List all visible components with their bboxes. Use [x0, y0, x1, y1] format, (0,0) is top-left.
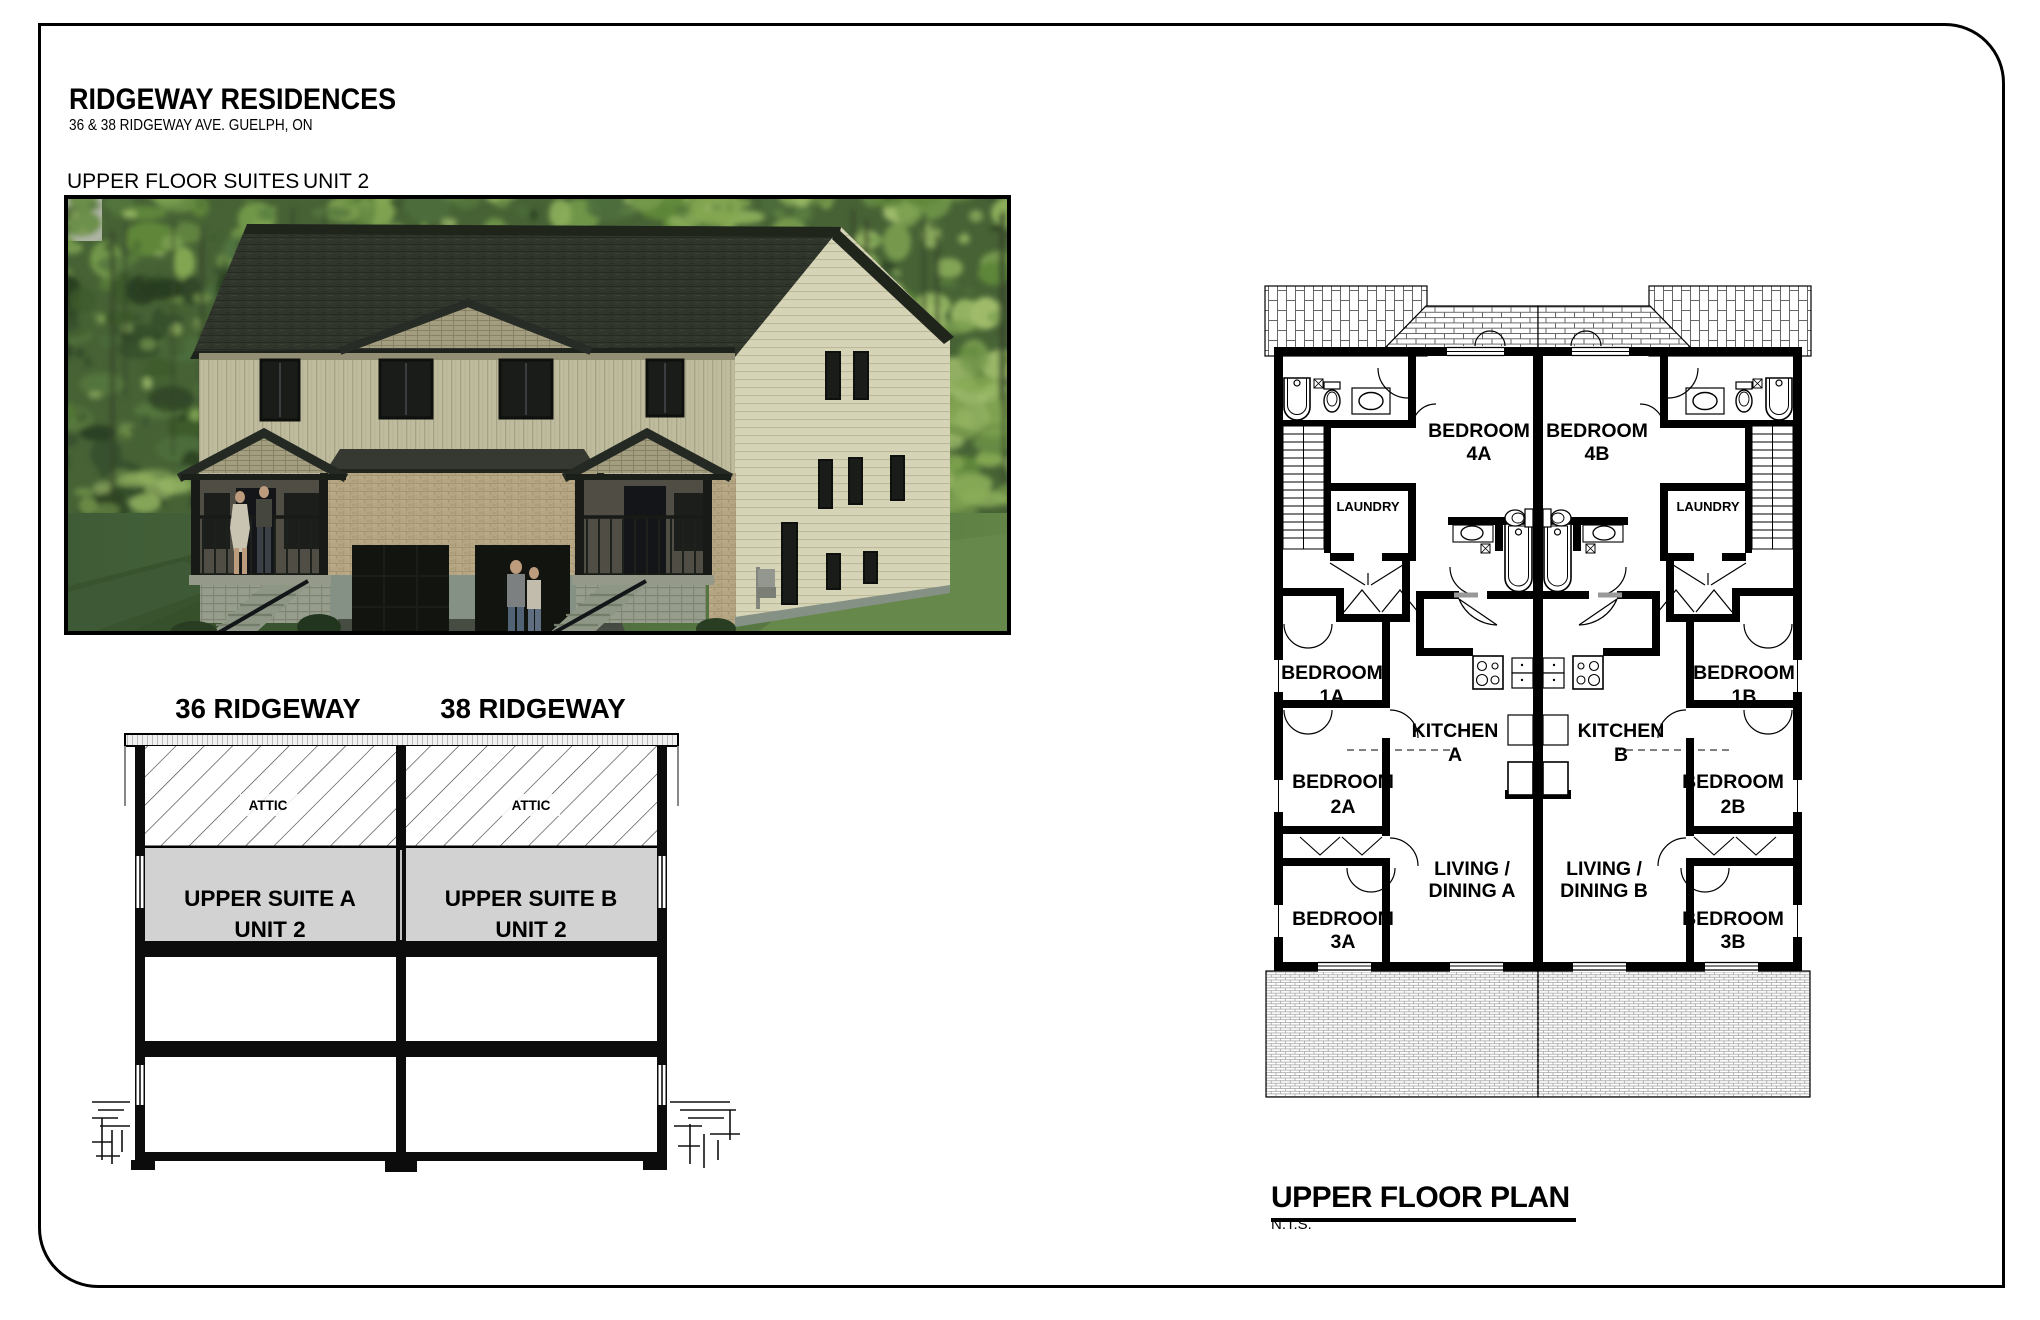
- svg-text:BEDROOM: BEDROOM: [1292, 908, 1394, 930]
- svg-text:1B: 1B: [1732, 686, 1757, 708]
- svg-text:LIVING /: LIVING /: [1434, 858, 1510, 880]
- svg-text:LAUNDRY: LAUNDRY: [1676, 499, 1739, 514]
- svg-text:BEDROOM: BEDROOM: [1682, 771, 1784, 793]
- svg-text:ATTIC: ATTIC: [512, 798, 551, 813]
- svg-text:BEDROOM: BEDROOM: [1292, 771, 1394, 793]
- svg-text:BEDROOM: BEDROOM: [1693, 662, 1795, 684]
- svg-text:4A: 4A: [1467, 443, 1492, 465]
- svg-text:BEDROOM: BEDROOM: [1682, 908, 1784, 930]
- svg-text:LAUNDRY: LAUNDRY: [1336, 499, 1399, 514]
- svg-text:KITCHEN: KITCHEN: [1578, 720, 1665, 742]
- svg-text:ATTIC: ATTIC: [249, 798, 288, 813]
- svg-text:UPPER SUITE B: UPPER SUITE B: [445, 886, 618, 911]
- svg-text:DINING A: DINING A: [1428, 880, 1515, 902]
- svg-text:BEDROOM: BEDROOM: [1428, 420, 1530, 442]
- svg-text:UPPER SUITE A: UPPER SUITE A: [184, 886, 356, 911]
- svg-text:36 RIDGEWAY: 36 RIDGEWAY: [175, 693, 360, 724]
- svg-text:LIVING /: LIVING /: [1566, 858, 1642, 880]
- svg-text:UNIT 2: UNIT 2: [495, 917, 566, 942]
- svg-text:2B: 2B: [1721, 796, 1746, 818]
- svg-text:1A: 1A: [1320, 686, 1345, 708]
- svg-text:3B: 3B: [1721, 931, 1746, 953]
- svg-text:3A: 3A: [1331, 931, 1356, 953]
- svg-text:BEDROOM: BEDROOM: [1546, 420, 1648, 442]
- svg-text:BEDROOM: BEDROOM: [1281, 662, 1383, 684]
- svg-text:4B: 4B: [1585, 443, 1610, 465]
- svg-text:B: B: [1614, 744, 1628, 766]
- svg-text:KITCHEN: KITCHEN: [1412, 720, 1499, 742]
- svg-text:A: A: [1448, 744, 1462, 766]
- svg-text:DINING B: DINING B: [1560, 880, 1648, 902]
- svg-text:38 RIDGEWAY: 38 RIDGEWAY: [440, 693, 625, 724]
- svg-text:UNIT 2: UNIT 2: [234, 917, 305, 942]
- svg-text:2A: 2A: [1331, 796, 1356, 818]
